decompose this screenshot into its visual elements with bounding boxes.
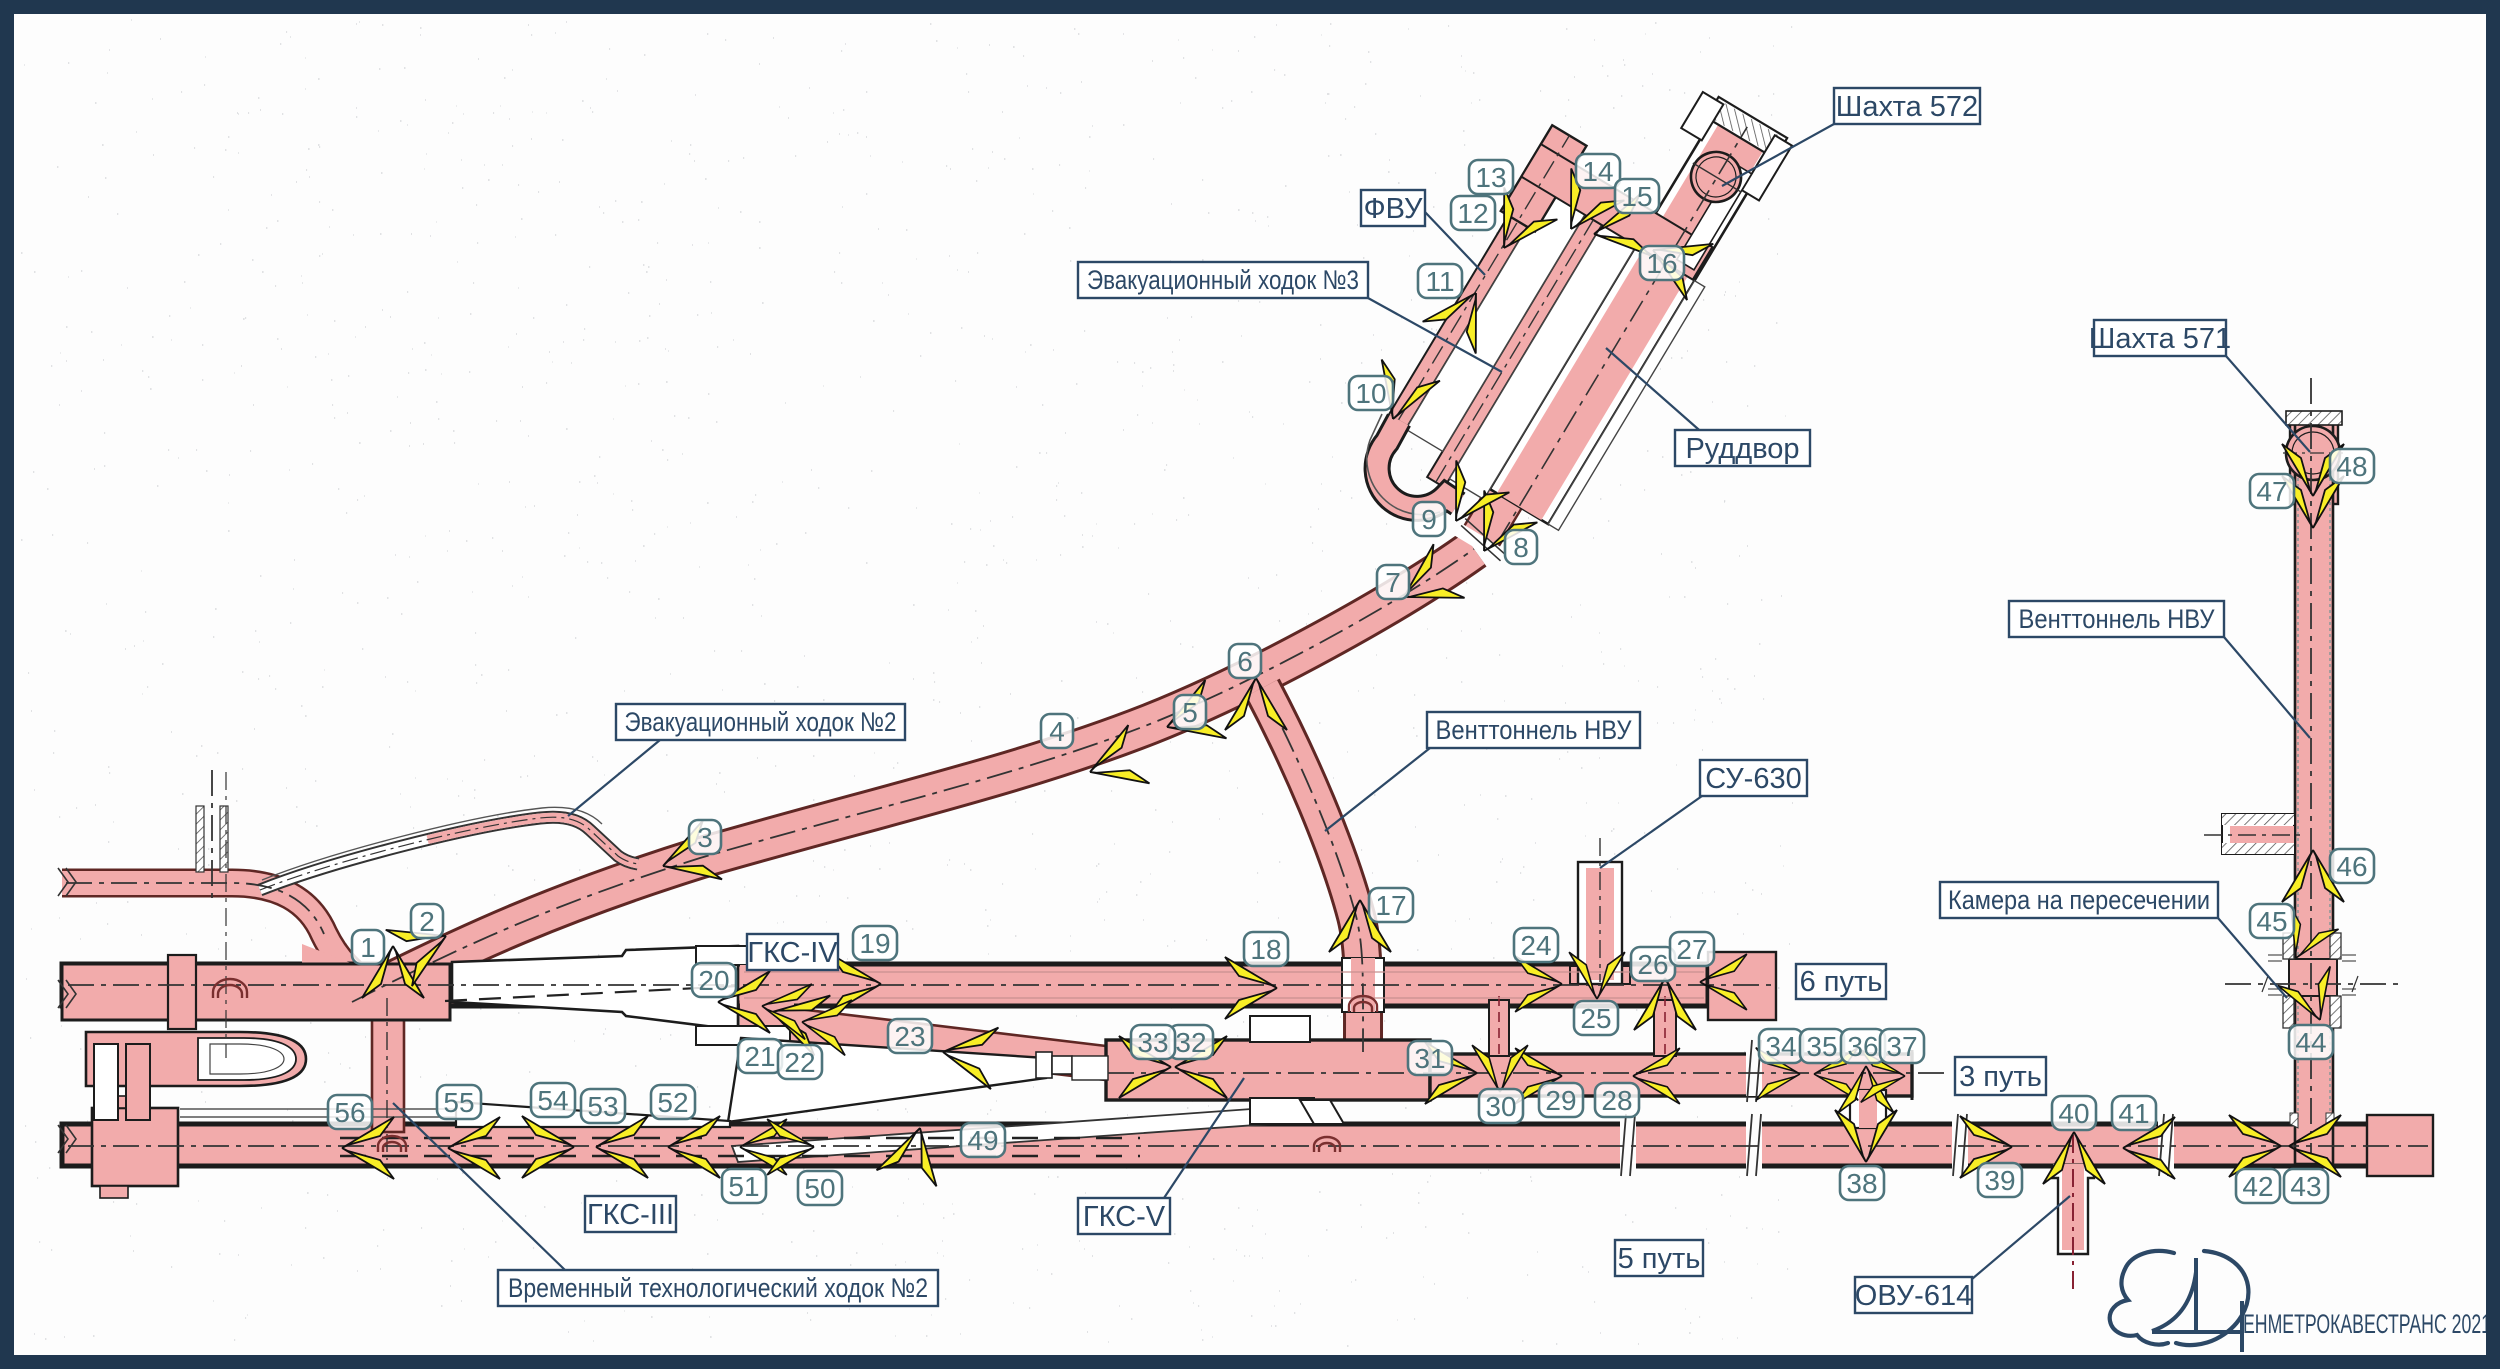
svg-text:ФВУ: ФВУ <box>1364 193 1423 225</box>
svg-text:52: 52 <box>657 1087 688 1118</box>
svg-text:45: 45 <box>2256 906 2287 937</box>
svg-text:6: 6 <box>1237 646 1253 677</box>
svg-text:18: 18 <box>1250 934 1281 965</box>
svg-text:28: 28 <box>1601 1085 1632 1116</box>
svg-text:36: 36 <box>1847 1031 1878 1062</box>
svg-text:3: 3 <box>697 822 713 853</box>
svg-text:Эвакуационный ходок №2: Эвакуационный ходок №2 <box>625 707 897 737</box>
svg-text:43: 43 <box>2290 1171 2321 1202</box>
svg-text:40: 40 <box>2058 1098 2089 1129</box>
svg-text:23: 23 <box>894 1021 925 1052</box>
svg-text:8: 8 <box>1513 532 1529 563</box>
svg-text:50: 50 <box>804 1173 835 1204</box>
svg-text:42: 42 <box>2242 1171 2273 1202</box>
svg-text:ГКС-III: ГКС-III <box>587 1199 674 1231</box>
svg-text:9: 9 <box>1421 504 1437 535</box>
svg-text:Руддвор: Руддвор <box>1685 433 1799 465</box>
svg-text:55: 55 <box>443 1087 474 1118</box>
svg-text:47: 47 <box>2256 476 2287 507</box>
svg-text:29: 29 <box>1545 1085 1576 1116</box>
svg-text:ОВУ-614: ОВУ-614 <box>1855 1280 1972 1312</box>
svg-text:30: 30 <box>1485 1091 1516 1122</box>
svg-text:51: 51 <box>728 1171 759 1202</box>
svg-text:46: 46 <box>2336 851 2367 882</box>
svg-text:5: 5 <box>1182 697 1198 728</box>
svg-text:27: 27 <box>1676 934 1707 965</box>
svg-text:56: 56 <box>334 1097 365 1128</box>
svg-text:Венттоннель НВУ: Венттоннель НВУ <box>1436 715 1633 745</box>
svg-text:12: 12 <box>1457 198 1488 229</box>
svg-text:15: 15 <box>1621 181 1652 212</box>
svg-text:16: 16 <box>1646 248 1677 279</box>
svg-text:39: 39 <box>1984 1165 2015 1196</box>
svg-text:Венттоннель НВУ: Венттоннель НВУ <box>2019 604 2216 634</box>
svg-text:14: 14 <box>1582 156 1613 187</box>
svg-text:35: 35 <box>1806 1031 1837 1062</box>
svg-text:22: 22 <box>784 1047 815 1078</box>
svg-text:7: 7 <box>1385 567 1401 598</box>
svg-text:21: 21 <box>744 1041 775 1072</box>
svg-text:19: 19 <box>859 928 890 959</box>
svg-text:49: 49 <box>967 1125 998 1156</box>
svg-text:6 путь: 6 путь <box>1800 966 1883 998</box>
svg-text:Шахта 572: Шахта 572 <box>1836 91 1978 123</box>
svg-text:10: 10 <box>1355 378 1386 409</box>
svg-text:26: 26 <box>1637 949 1668 980</box>
svg-text:Шахта 571: Шахта 571 <box>2089 323 2231 355</box>
svg-text:31: 31 <box>1414 1043 1445 1074</box>
svg-text:33: 33 <box>1137 1027 1168 1058</box>
svg-text:1: 1 <box>360 932 376 963</box>
svg-text:17: 17 <box>1375 890 1406 921</box>
svg-text:Эвакуационный ходок №3: Эвакуационный ходок №3 <box>1087 265 1359 295</box>
svg-text:Камера на пересечении: Камера на пересечении <box>1948 885 2210 915</box>
svg-text:48: 48 <box>2336 451 2367 482</box>
svg-text:44: 44 <box>2295 1027 2326 1058</box>
svg-text:4: 4 <box>1049 716 1065 747</box>
svg-text:11: 11 <box>1425 266 1454 297</box>
svg-text:ЕНМЕТРОКАВЕСТРАНС 2021: ЕНМЕТРОКАВЕСТРАНС 2021 <box>2243 1309 2491 1339</box>
svg-text:32: 32 <box>1175 1027 1206 1058</box>
svg-text:41: 41 <box>2118 1098 2149 1129</box>
svg-text:37: 37 <box>1886 1031 1917 1062</box>
svg-text:54: 54 <box>537 1085 568 1116</box>
svg-text:38: 38 <box>1846 1168 1877 1199</box>
svg-text:СУ-630: СУ-630 <box>1705 763 1801 795</box>
svg-text:25: 25 <box>1580 1003 1611 1034</box>
svg-text:53: 53 <box>587 1091 618 1122</box>
svg-text:3 путь: 3 путь <box>1959 1061 2042 1093</box>
svg-text:24: 24 <box>1520 930 1551 961</box>
svg-text:ГКС-IV: ГКС-IV <box>747 937 838 969</box>
svg-text:34: 34 <box>1765 1031 1796 1062</box>
svg-text:20: 20 <box>698 965 729 996</box>
svg-text:ГКС-V: ГКС-V <box>1083 1201 1166 1233</box>
svg-text:5 путь: 5 путь <box>1618 1243 1701 1275</box>
svg-text:2: 2 <box>419 906 435 937</box>
svg-text:13: 13 <box>1475 162 1506 193</box>
svg-text:Временный технологический ходо: Временный технологический ходок №2 <box>508 1273 928 1303</box>
